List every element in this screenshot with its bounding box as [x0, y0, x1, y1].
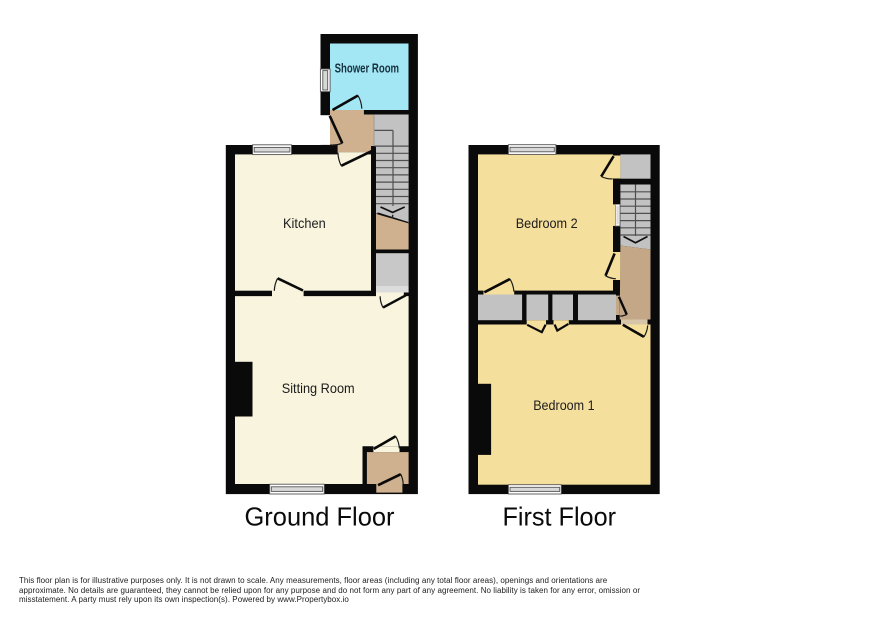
svg-text:Ground Floor: Ground Floor: [245, 502, 395, 532]
svg-text:Bedroom 1: Bedroom 1: [533, 397, 595, 413]
svg-text:Kitchen: Kitchen: [283, 215, 326, 231]
svg-text:Sitting Room: Sitting Room: [282, 380, 355, 396]
svg-text:Shower Room: Shower Room: [335, 60, 400, 75]
svg-text:First Floor: First Floor: [503, 502, 617, 532]
svg-text:Bedroom 2: Bedroom 2: [516, 215, 578, 231]
